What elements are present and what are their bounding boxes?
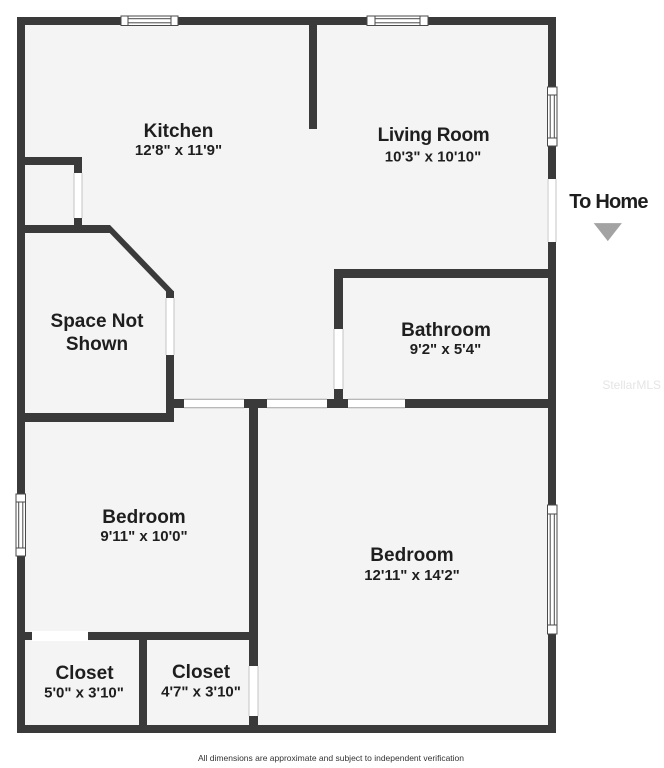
svg-text:5'0" x 3'10": 5'0" x 3'10" [44,685,124,702]
svg-text:To Home: To Home [569,191,648,213]
svg-text:Bathroom: Bathroom [401,320,491,341]
svg-text:12'11" x 14'2": 12'11" x 14'2" [364,567,460,584]
svg-text:Kitchen: Kitchen [144,121,214,142]
svg-text:Shown: Shown [66,334,128,355]
svg-text:9'2" x 5'4": 9'2" x 5'4" [410,341,481,358]
svg-text:Living Room: Living Room [378,125,490,146]
svg-text:StellarMLS: StellarMLS [602,378,661,392]
svg-text:Bedroom: Bedroom [370,545,453,566]
svg-text:9'11" x 10'0": 9'11" x 10'0" [100,528,187,545]
svg-text:4'7" x 3'10": 4'7" x 3'10" [161,684,241,701]
svg-text:All dimensions are approximate: All dimensions are approximate and subje… [198,753,464,763]
svg-text:Space Not: Space Not [51,311,145,332]
svg-text:10'3" x 10'10": 10'3" x 10'10" [385,149,481,166]
svg-text:Closet: Closet [55,663,114,684]
svg-text:Closet: Closet [172,662,231,683]
svg-text:Bedroom: Bedroom [102,507,185,528]
svg-text:12'8" x 11'9": 12'8" x 11'9" [135,142,222,159]
